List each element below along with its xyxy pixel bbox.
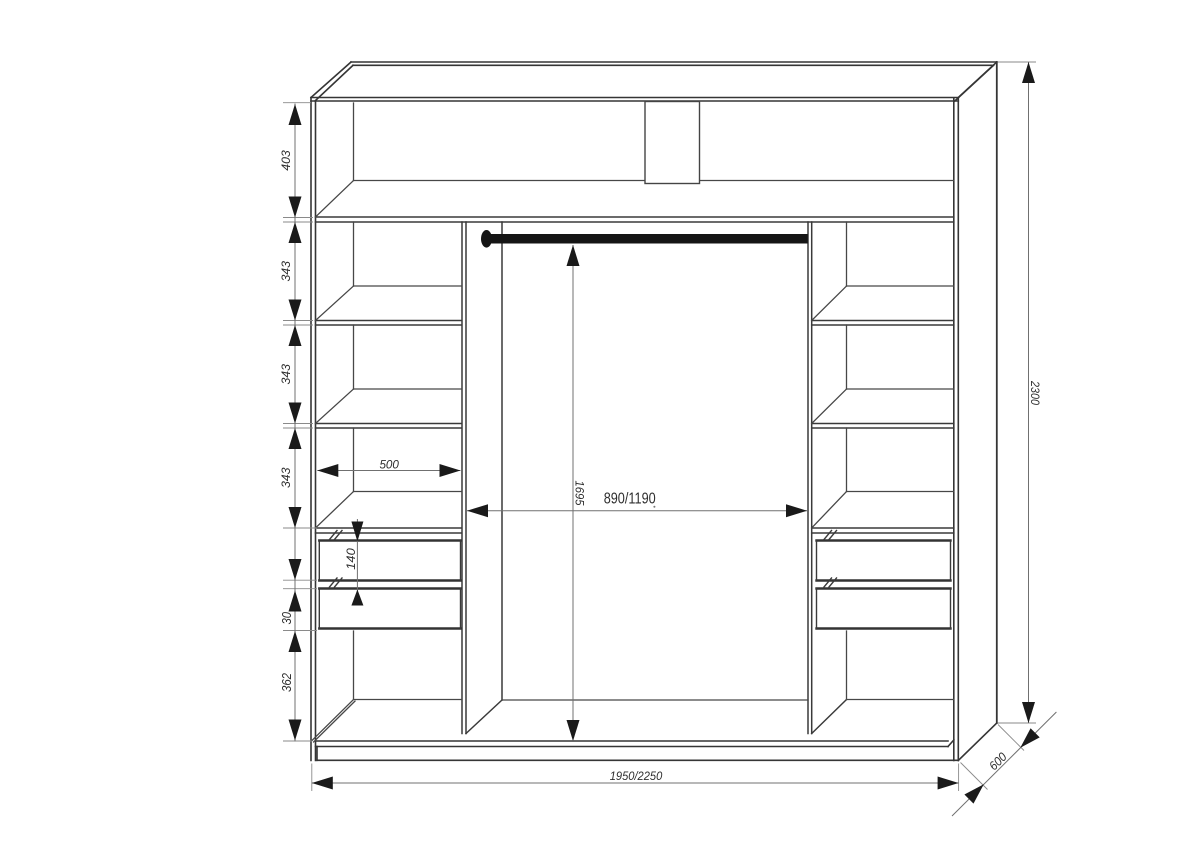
svg-text:343: 343	[279, 261, 293, 282]
svg-text:890/1190: 890/1190	[604, 491, 656, 508]
svg-text:1950/2250: 1950/2250	[610, 769, 663, 783]
svg-text:343: 343	[279, 467, 293, 488]
svg-text:140: 140	[344, 548, 358, 570]
svg-text:500: 500	[379, 457, 399, 471]
svg-text:343: 343	[279, 364, 293, 385]
svg-text:403: 403	[279, 150, 293, 171]
svg-text:2300: 2300	[1028, 380, 1042, 405]
svg-text:1695: 1695	[573, 481, 587, 506]
svg-text:362: 362	[279, 672, 294, 692]
svg-text:30: 30	[279, 611, 294, 624]
